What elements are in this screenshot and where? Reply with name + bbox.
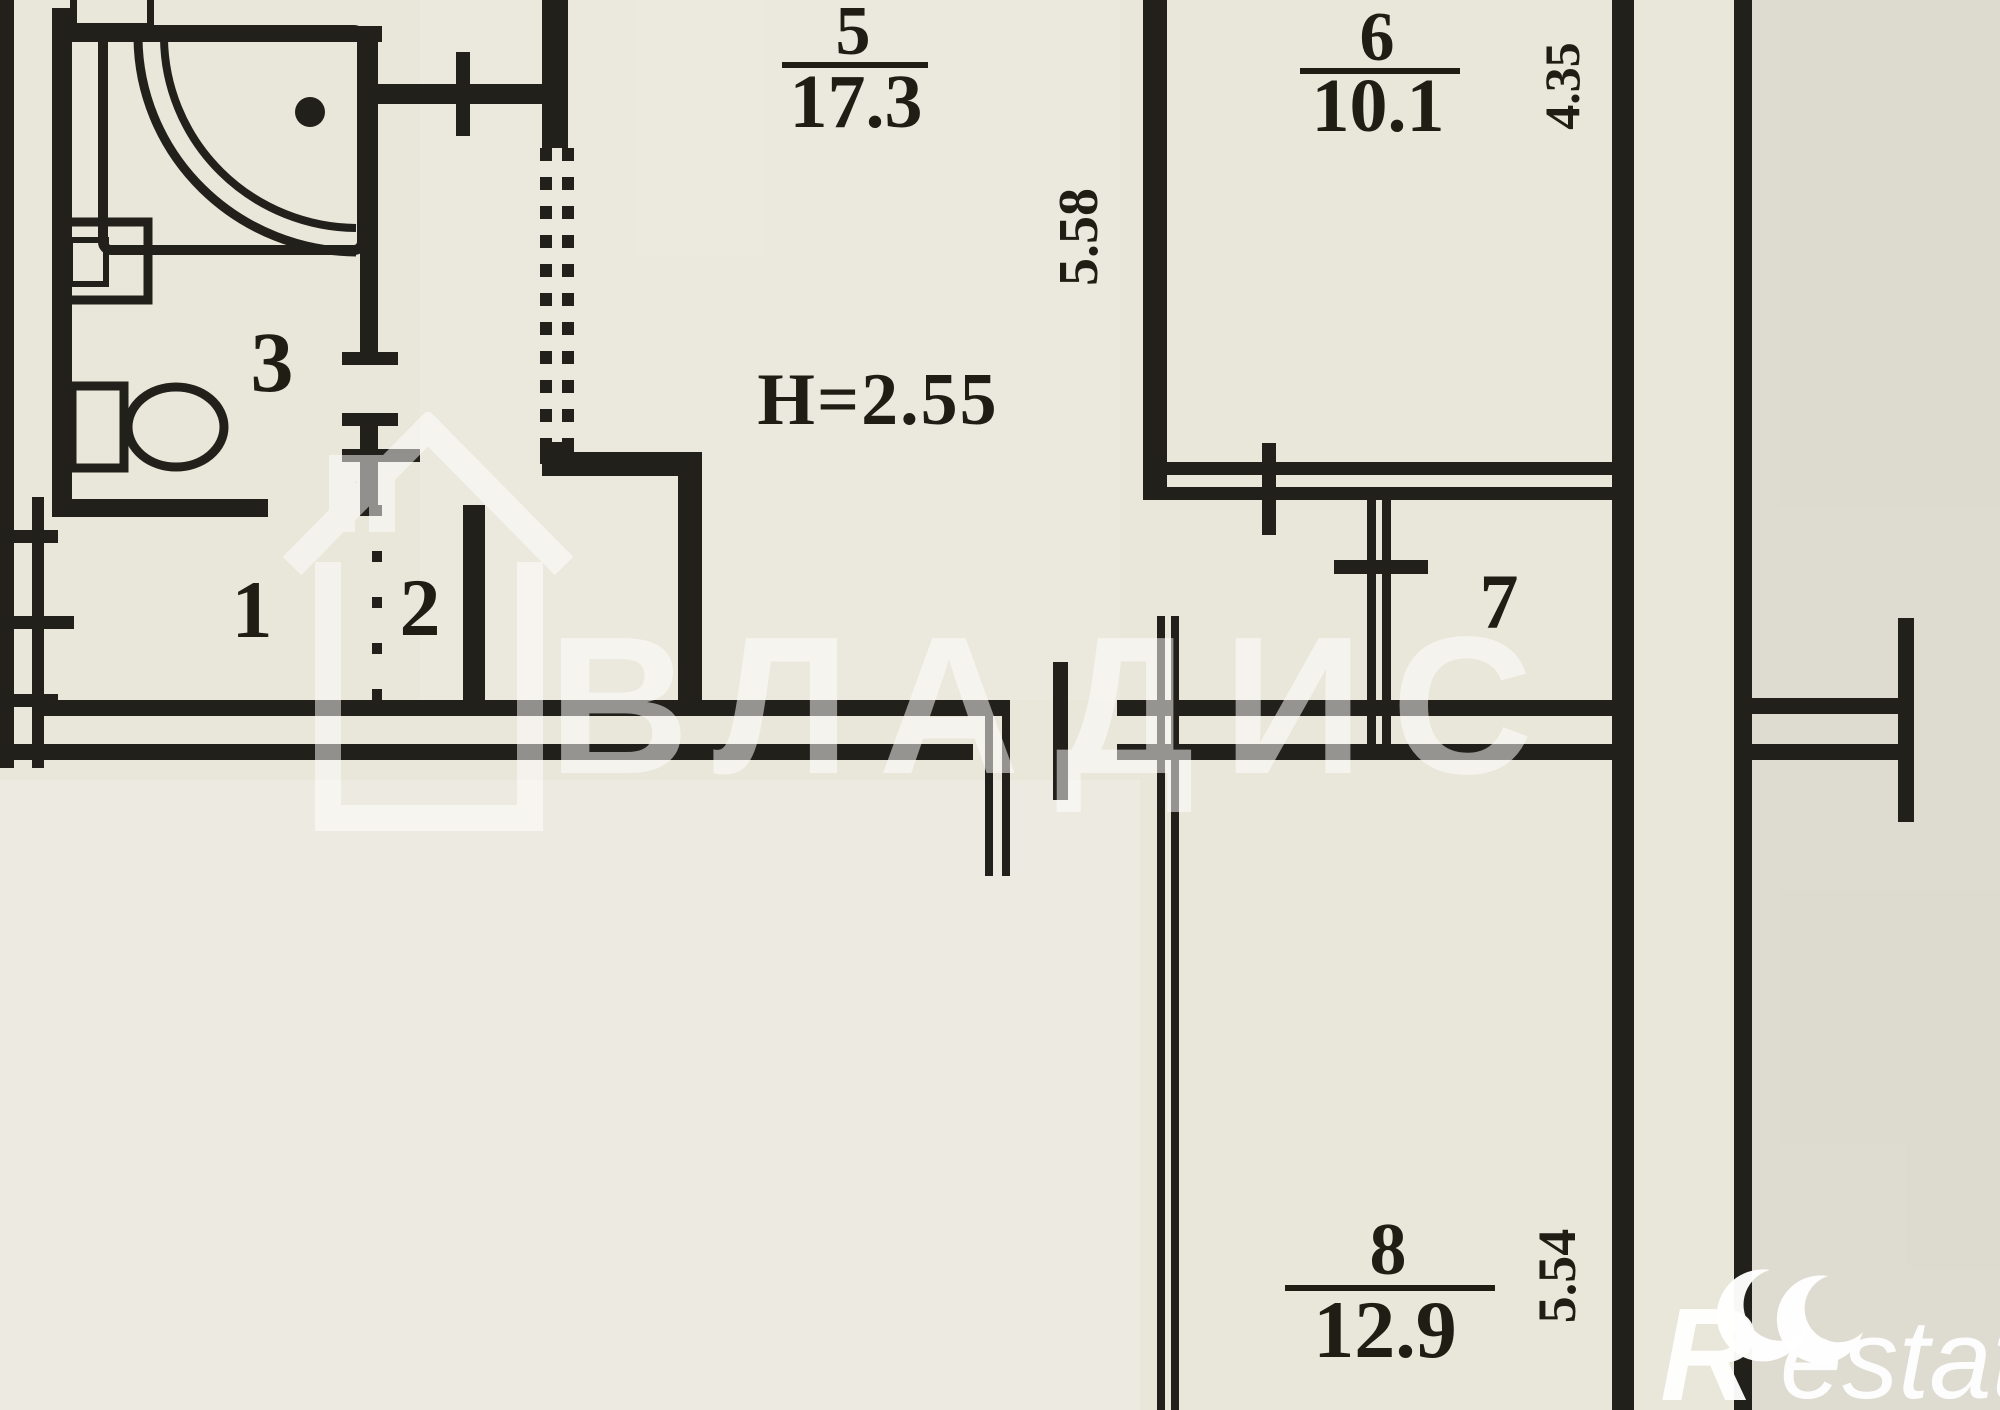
toilet-tank-icon: [72, 386, 124, 468]
shower-drain-icon: [295, 97, 325, 127]
floor-plan: 5 17.3 6 10.1 8 12.9 1 2 3 7 H=2.55 5.58…: [0, 0, 2000, 1410]
room-8-area: 12.9: [1313, 1289, 1457, 1371]
ceiling-height-note: H=2.55: [757, 363, 998, 437]
room-3-number: 3: [251, 319, 294, 405]
restate-logo: R estate: [1652, 1268, 2000, 1410]
agency-watermark-text: ВЛАДИС: [548, 608, 1561, 804]
room-5-number: 5: [836, 0, 871, 67]
dimension-5-58: 5.58: [1051, 188, 1107, 286]
agency-house-watermark-icon: [278, 412, 578, 832]
restate-logo-r: R: [1660, 1281, 1755, 1410]
room-8-number: 8: [1370, 1213, 1407, 1287]
room-6-number: 6: [1360, 3, 1395, 73]
restate-logo-estate: estate: [1780, 1297, 2000, 1410]
room-5-area: 17.3: [790, 64, 923, 140]
toilet-bowl-icon: [128, 387, 224, 467]
shower-door-icon: [164, 38, 356, 228]
dimension-4-35: 4.35: [1537, 42, 1587, 130]
room-1-number: 1: [232, 569, 273, 651]
dimension-5-54: 5.54: [1530, 1229, 1584, 1324]
room-6-area: 10.1: [1312, 68, 1445, 144]
